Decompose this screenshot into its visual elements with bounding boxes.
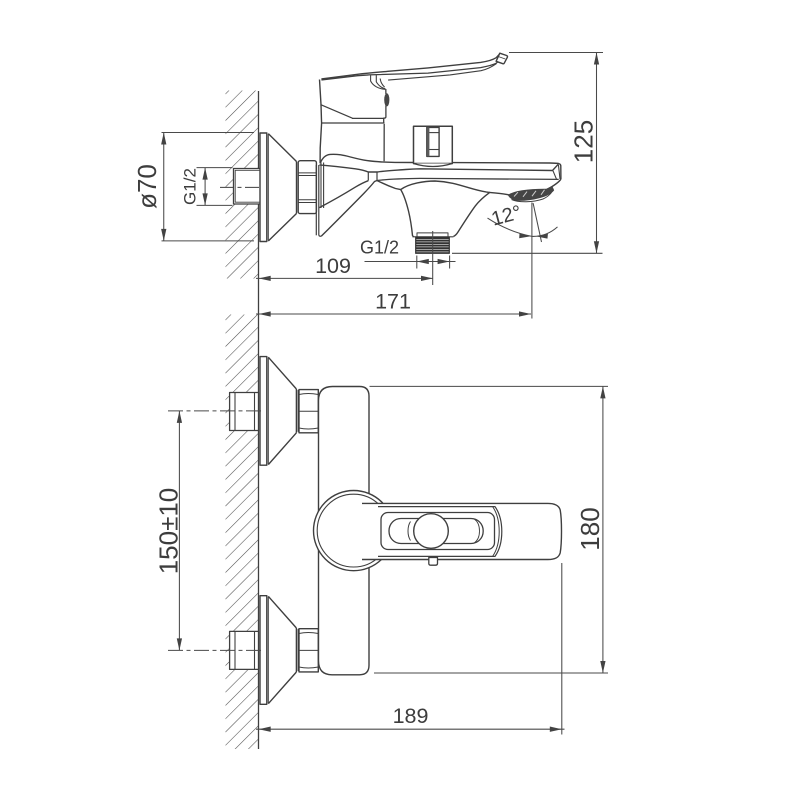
svg-text:109: 109 xyxy=(315,254,351,278)
svg-text:171: 171 xyxy=(375,290,411,314)
svg-text:ø70: ø70 xyxy=(132,164,162,209)
svg-text:189: 189 xyxy=(393,704,429,728)
svg-text:G1/2: G1/2 xyxy=(360,238,399,258)
svg-text:12°: 12° xyxy=(489,201,524,230)
svg-text:180: 180 xyxy=(575,507,605,550)
svg-text:G1/2: G1/2 xyxy=(181,168,200,205)
svg-text:125: 125 xyxy=(569,120,599,163)
svg-text:150±10: 150±10 xyxy=(154,488,184,575)
